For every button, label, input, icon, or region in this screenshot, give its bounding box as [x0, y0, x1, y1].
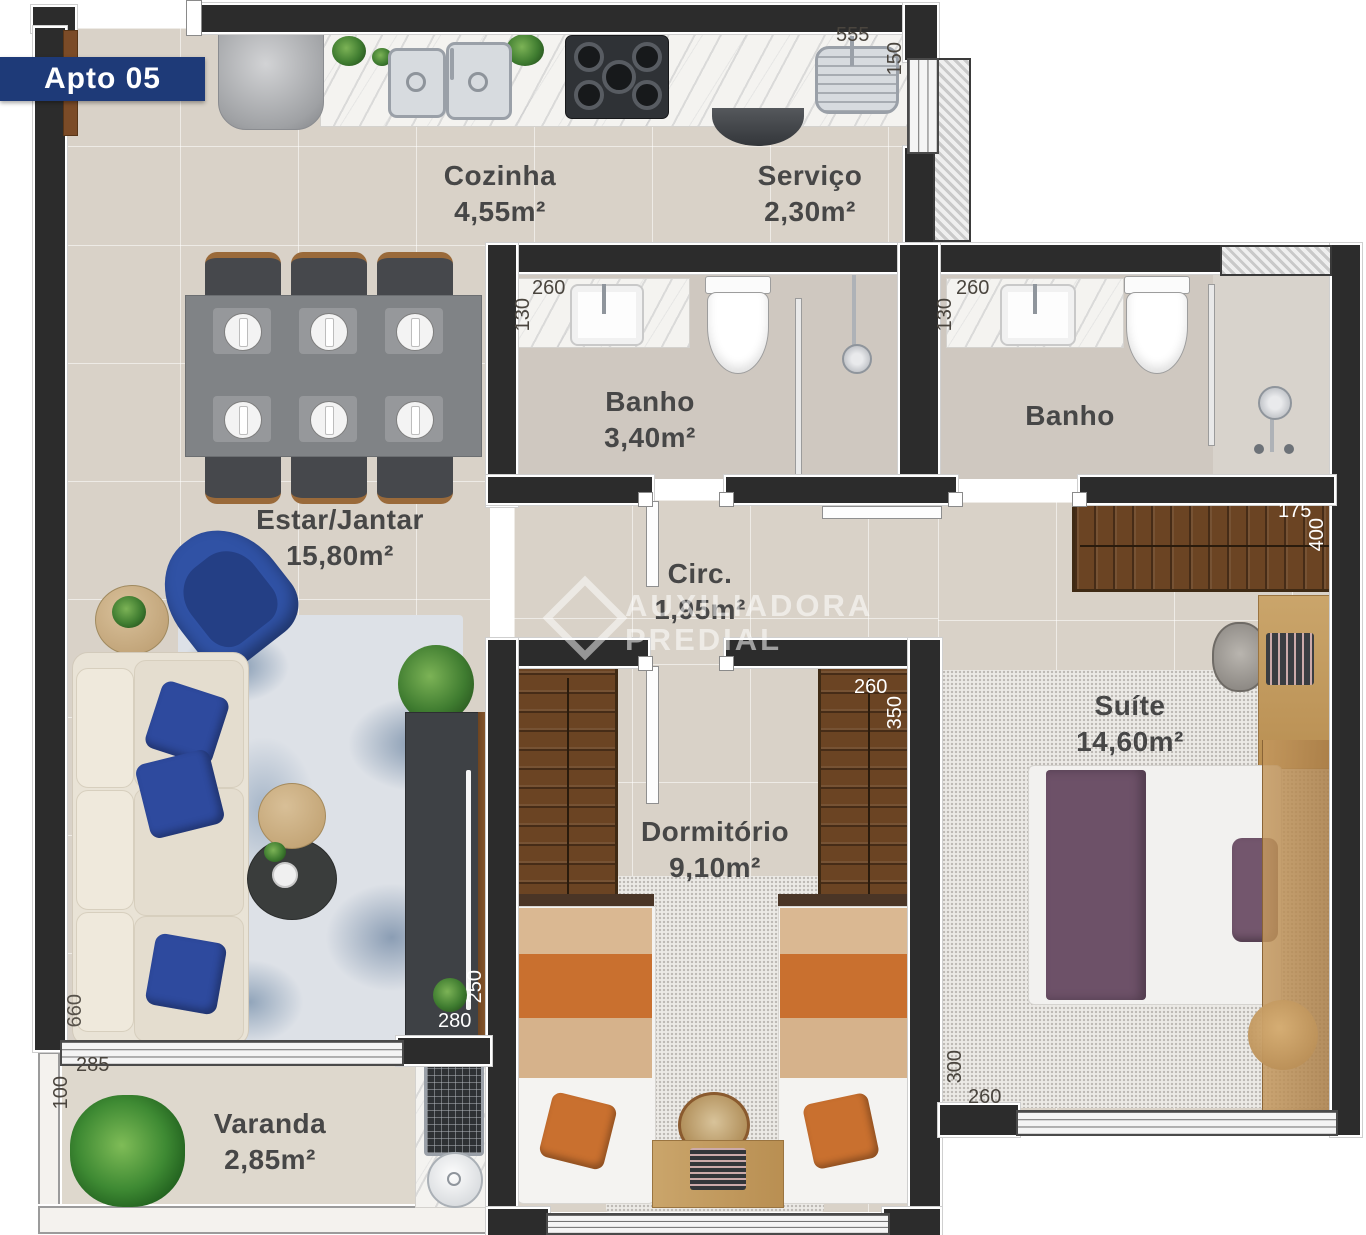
bbq-grill	[424, 1058, 484, 1156]
room-name: Banho	[605, 386, 695, 417]
plate-icon	[224, 313, 262, 351]
door-jamb	[948, 492, 963, 507]
wardrobe-rod	[567, 678, 569, 893]
dim-console-height: 250	[464, 970, 487, 1009]
coffee-table-plant-icon	[264, 842, 286, 862]
wall	[726, 477, 956, 503]
bath1-sink	[570, 284, 644, 346]
floor-plan: Cozinha 4,55m² Serviço 2,30m² Banho 3,40…	[0, 0, 1366, 1235]
apartment-banner-label: Apto 05	[44, 62, 161, 96]
dim-suite-bed-height: 300	[944, 1050, 967, 1089]
room-name: Cozinha	[444, 160, 556, 191]
burner-icon	[574, 42, 604, 72]
bath1-shower-stem-icon	[852, 272, 856, 352]
bed-right-pillow	[802, 1092, 880, 1170]
balcony-sliding-door	[60, 1040, 404, 1066]
wall	[905, 5, 937, 60]
balcony-sink-drain-icon	[447, 1172, 461, 1186]
room-name: Varanda	[214, 1108, 326, 1139]
room-area: 2,85m²	[224, 1144, 316, 1175]
plate-icon	[224, 401, 262, 439]
dim-sofa-length: 660	[64, 994, 87, 1033]
wall	[35, 28, 65, 1050]
room-label-banho1: Banho 3,40m²	[560, 384, 740, 457]
wall	[488, 1209, 548, 1235]
place-setting	[213, 308, 271, 354]
service-window	[907, 58, 939, 154]
place-setting	[213, 396, 271, 442]
dim-banho2-vanity-height: 130	[934, 298, 957, 337]
door-jamb	[719, 492, 734, 507]
room-label-suite: Suíte 14,60m²	[1040, 688, 1220, 761]
sofa-back-cushion	[76, 790, 134, 910]
bath1-shower-head-icon	[842, 344, 872, 374]
room-label-estar: Estar/Jantar 15,80m²	[210, 502, 470, 575]
water-heater	[218, 28, 324, 130]
burner-icon	[574, 80, 604, 110]
burner-icon	[632, 42, 662, 72]
dim-varanda-height: 100	[50, 1076, 73, 1115]
dim-value: 400	[1306, 518, 1329, 551]
suite-door-leaf	[822, 506, 942, 519]
door-jamb	[638, 492, 653, 507]
dim-banho2-vanity-width: 260	[956, 277, 989, 300]
room-label-varanda: Varanda 2,85m²	[170, 1106, 370, 1179]
bath2-shower-glass	[1208, 284, 1215, 446]
counter-plant-icon	[332, 36, 366, 66]
wall	[900, 245, 938, 503]
room-label-cozinha: Cozinha 4,55m²	[380, 158, 620, 231]
dim-suite-bed-width: 260	[968, 1086, 1001, 1109]
wall	[910, 640, 940, 1235]
wall	[488, 245, 516, 505]
bath2-shower-control-icon	[1254, 444, 1264, 454]
dim-suite-wardrobe-height: 400	[1306, 518, 1329, 557]
watermark-logo-icon	[543, 576, 628, 661]
burner-icon	[602, 60, 636, 94]
wardrobe-rod	[868, 678, 870, 893]
bed-left-blanket-tan2	[518, 1018, 652, 1078]
sofa-pillow	[144, 932, 227, 1015]
dim-servico-width: 555	[836, 24, 869, 47]
suite-bed-blanket	[1046, 770, 1146, 1000]
room-label-dormitorio: Dormitório 9,10m²	[600, 814, 830, 887]
sink-drain-icon	[406, 72, 426, 92]
plate-icon	[310, 401, 348, 439]
room-area: 2,30m²	[764, 196, 856, 227]
dim-dorm-wardrobe-height: 350	[884, 696, 907, 735]
bed-left-headboard	[516, 894, 654, 906]
dim-console-width: 280	[438, 1010, 471, 1033]
plate-icon	[396, 313, 434, 351]
bed-right-blanket-tan	[780, 908, 912, 954]
bed-right-blanket-tan2	[780, 1018, 912, 1078]
room-label-servico: Serviço 2,30m²	[700, 158, 920, 231]
wall	[940, 1105, 1018, 1135]
room-label-banho2: Banho	[990, 398, 1150, 434]
dim-value: 130	[934, 298, 957, 331]
suite-laptop-icon	[1266, 633, 1314, 685]
console-plant-icon	[433, 978, 467, 1012]
wall	[1332, 245, 1360, 1135]
bath2-sink	[1000, 284, 1076, 346]
door-jamb	[1072, 492, 1087, 507]
place-setting	[299, 308, 357, 354]
bedroom-laptop-icon	[690, 1148, 746, 1190]
watermark: AUXILIADORA PREDIAL	[545, 578, 865, 668]
sofa-back-cushion	[76, 668, 134, 788]
place-setting	[299, 396, 357, 442]
balcony-parapet-bottom	[38, 1206, 492, 1234]
room-area: 9,10m²	[669, 852, 761, 883]
bed-right-blanket-orange	[780, 954, 912, 1018]
bath2-shower-head-icon	[1258, 386, 1292, 420]
room-name: Serviço	[758, 160, 863, 191]
wall	[488, 477, 652, 503]
dim-value: 660	[64, 994, 87, 1027]
suite-window	[1016, 1110, 1338, 1136]
watermark-line1: AUXILIADORA	[625, 588, 873, 624]
dim-servico-height: 150	[884, 42, 907, 81]
bed-left-blanket-tan	[518, 908, 652, 954]
bedroom-door-leaf	[646, 666, 659, 804]
dim-banho1-vanity-height: 130	[512, 298, 535, 337]
dim-value: 150	[884, 42, 907, 75]
room-area: 4,55m²	[454, 196, 546, 227]
dim-value: 300	[944, 1050, 967, 1083]
wall	[488, 640, 516, 1235]
dim-value: 250	[464, 970, 487, 1003]
bath1-shower-glass	[795, 298, 802, 478]
bed-left-blanket-orange	[518, 954, 652, 1018]
room-area: 14,60m²	[1076, 726, 1184, 757]
door-jamb	[186, 0, 202, 36]
bath2-faucet-icon	[1033, 284, 1037, 314]
watermark-line2: PREDIAL	[625, 622, 782, 658]
suite-round-stool	[1248, 1000, 1318, 1070]
window-hatch	[1220, 245, 1332, 276]
coffee-table-wood	[258, 783, 326, 849]
place-setting	[385, 396, 443, 442]
dim-value: 350	[884, 696, 907, 729]
balcony-plant-icon	[70, 1095, 185, 1207]
sink-drain-icon	[468, 72, 488, 92]
sink-faucet-icon	[450, 48, 454, 80]
dim-value: 100	[50, 1076, 73, 1109]
dim-dorm-wardrobe-width: 260	[854, 676, 887, 699]
wall	[195, 5, 935, 32]
dim-banho1-vanity-width: 260	[532, 277, 565, 300]
plate-icon	[310, 313, 348, 351]
room-area: 3,40m²	[604, 422, 696, 453]
place-setting	[385, 308, 443, 354]
wall	[884, 1209, 940, 1235]
apartment-banner: Apto 05	[0, 57, 205, 101]
wall	[398, 1038, 490, 1064]
bedroom-window	[546, 1213, 890, 1235]
dim-varanda-width: 285	[76, 1054, 109, 1077]
room-name: Estar/Jantar	[256, 504, 424, 535]
room-name: Dormitório	[641, 816, 789, 847]
plate-icon	[396, 401, 434, 439]
bath1-faucet-icon	[602, 284, 606, 314]
room-area: 15,80m²	[286, 540, 394, 571]
side-table-plant-icon	[112, 596, 146, 628]
dim-value: 130	[512, 298, 535, 331]
bed-right-headboard	[778, 894, 916, 906]
coffee-table-plate-icon	[272, 862, 298, 888]
bath2-shower-control-icon	[1284, 444, 1294, 454]
burner-icon	[632, 80, 662, 110]
room-name: Suíte	[1095, 690, 1166, 721]
wardrobe-rod	[1080, 545, 1330, 547]
room-name: Banho	[1025, 400, 1115, 431]
